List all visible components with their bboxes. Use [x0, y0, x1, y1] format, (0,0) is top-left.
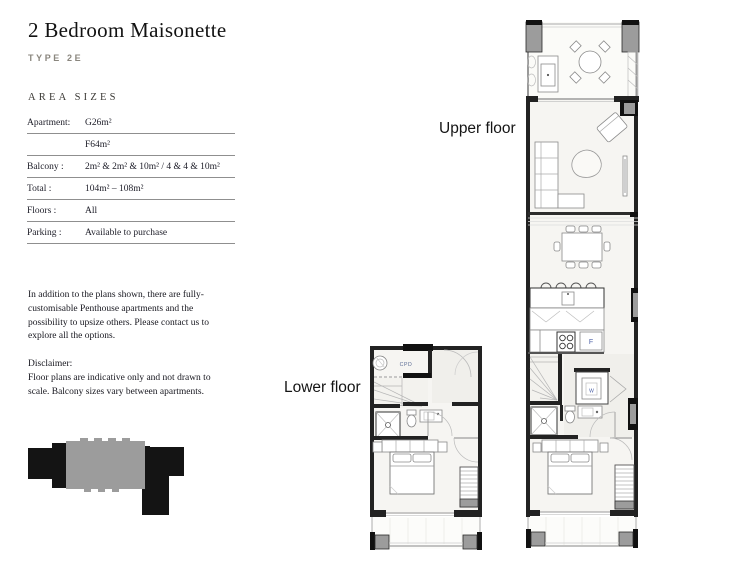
bed [548, 452, 592, 494]
row-label [27, 140, 85, 150]
lower-floor-svg: CPD [366, 342, 486, 558]
disclaimer-body: Floor plans are indicative only and not … [28, 372, 224, 400]
row-value: G26m² [85, 118, 235, 128]
lower-floor-plan: CPD [366, 342, 486, 558]
row-value: 2m² & 2m² & 10m² / 4 & 4 & 10m² [85, 162, 235, 172]
row-value: All [85, 206, 235, 216]
washer-label: W [589, 389, 594, 395]
wardrobe-row [373, 440, 447, 452]
upper-floor-label: Upper floor [439, 120, 516, 138]
footprint-highlight [66, 438, 145, 492]
table-row: F64m² [27, 134, 235, 156]
fridge-label: F [589, 339, 593, 346]
terrace-daybed [538, 56, 558, 92]
apartment-type-label: TYPE 2E [28, 53, 83, 63]
area-sizes-table: Apartment: G26m² F64m² Balcony : 2m² & 2… [27, 112, 235, 244]
stove [557, 332, 575, 352]
bed [390, 452, 434, 494]
shower [531, 407, 557, 435]
row-value: Available to purchase [85, 228, 235, 238]
staircase [526, 354, 562, 405]
building-footprint-diagram [26, 438, 188, 518]
shelving-unit [615, 465, 634, 509]
shower [376, 412, 400, 438]
brochure-page: 2 Bedroom Maisonette TYPE 2E AREA SIZES … [0, 0, 744, 571]
vanity-sink [578, 406, 602, 418]
vanity-sink [420, 410, 442, 422]
upper-floor-plan: F [516, 16, 642, 554]
upper-floor-svg: F [516, 16, 642, 554]
table-row: Apartment: G26m² [27, 112, 235, 134]
notes-block: In addition to the plans shown, there ar… [28, 289, 224, 399]
area-sizes-heading: AREA SIZES [28, 92, 119, 103]
tv-unit [623, 156, 627, 196]
row-value: F64m² [85, 140, 235, 150]
lower-floor-label: Lower floor [284, 379, 361, 397]
cupboard-label: CPD [400, 362, 413, 368]
table-row: Balcony : 2m² & 2m² & 10m² / 4 & 4 & 10m… [27, 156, 235, 178]
table-row: Parking : Available to purchase [27, 222, 235, 244]
toilet [565, 406, 575, 423]
row-label: Balcony : [27, 162, 85, 172]
row-label: Parking : [27, 228, 85, 238]
disclaimer-heading: Disclaimer: [28, 358, 224, 372]
row-label: Apartment: [27, 118, 85, 128]
table-row: Total : 104m² – 108m² [27, 178, 235, 200]
table-row: Floors : All [27, 200, 235, 222]
fridge: F [580, 332, 602, 350]
toilet [407, 410, 416, 427]
row-label: Total : [27, 184, 85, 194]
wardrobe-row [533, 440, 608, 452]
shelving-unit [460, 467, 478, 507]
row-label: Floors : [27, 206, 85, 216]
footprint-svg [26, 438, 188, 518]
page-title: 2 Bedroom Maisonette [28, 18, 226, 43]
row-value: 104m² – 108m² [85, 184, 235, 194]
notes-intro: In addition to the plans shown, there ar… [28, 289, 224, 344]
kitchen-counter: F [528, 308, 604, 354]
